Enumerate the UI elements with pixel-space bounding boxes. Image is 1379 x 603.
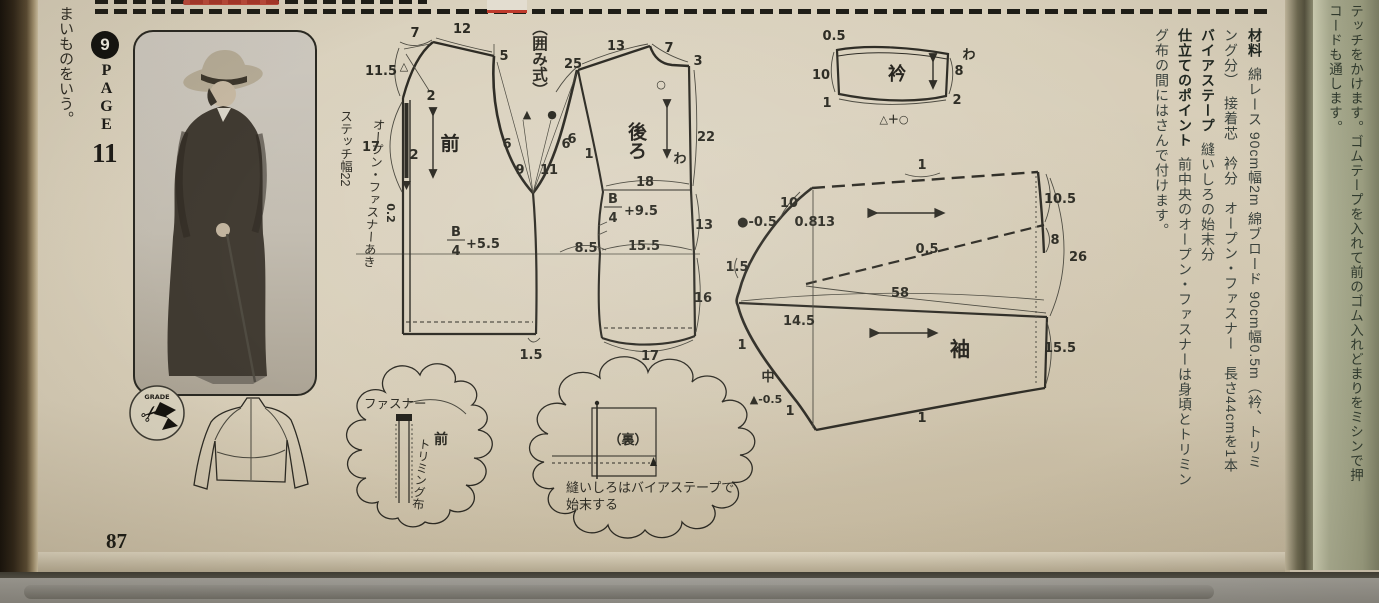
collar-dim-2: 2 bbox=[952, 93, 961, 108]
back-dim-15-5: 15.5 bbox=[628, 239, 660, 254]
front-dim-9: 9 bbox=[515, 163, 524, 178]
sewing-point-column-2: グ布の間にはさんで付けます。 bbox=[1155, 28, 1169, 566]
front-dim-12: 12 bbox=[453, 22, 471, 37]
collar-fold-mark: わ bbox=[962, 48, 975, 63]
book-page-photo: まいものをいう。 9 PAGE 11 87 bbox=[0, 0, 1379, 603]
sleeve-dim-1b: 1 bbox=[785, 404, 794, 419]
back-title: 後ろ bbox=[622, 122, 649, 172]
sleeve-dim-1-left: 1 bbox=[737, 338, 746, 353]
back-dim-6: 6 bbox=[567, 132, 576, 147]
sewing-point-heading: 仕立てのポイント bbox=[1177, 28, 1193, 148]
method-label: （囲み式） bbox=[527, 20, 549, 100]
back-dim-18: 18 bbox=[636, 175, 654, 190]
front-title: 前 bbox=[440, 132, 459, 155]
front-stitch-note: ステッチ幅22 bbox=[336, 110, 355, 230]
back-dim-22: 22 bbox=[697, 130, 715, 145]
bias-tape-heading: バイアステープ bbox=[1200, 28, 1216, 133]
front-dim-0-2: 0.2 bbox=[384, 203, 397, 223]
sleeve-labels: 1 10 ●-0.5 0.8 13 10.5 8 26 0.5 58 14.5 … bbox=[725, 158, 1087, 426]
front-dim-8-5: 8.5 bbox=[574, 241, 597, 256]
detail2-caption: 縫いしろはバイアステープで 始末する bbox=[566, 480, 736, 514]
sleeve-title: 袖 bbox=[950, 337, 970, 361]
front-formula-den: 4 bbox=[451, 244, 460, 259]
collar-marks: △＋○ bbox=[879, 113, 908, 126]
front-formula-num: B bbox=[451, 225, 461, 240]
materials-heading: 材料 bbox=[1247, 28, 1263, 58]
back-dim-17: 17 bbox=[641, 349, 659, 364]
collar-labels: 0.5 10 1 8 2 わ 衿 △＋○ bbox=[812, 29, 976, 126]
back-dim-13: 13 bbox=[607, 39, 625, 54]
collar-title: 衿 bbox=[888, 63, 906, 85]
sleeve-dim-tri-0-5: ▲-0.5 bbox=[750, 393, 783, 406]
sleeve-dim-1-top: 1 bbox=[917, 158, 926, 173]
next-page-column-2: コードも通します。 bbox=[1324, 4, 1344, 304]
back-dim-13r: 13 bbox=[695, 218, 713, 233]
grade-logo: GRADE ✂ bbox=[130, 386, 184, 440]
back-dim-7: 7 bbox=[664, 41, 673, 56]
front-mark-solid-triangle: ▲ bbox=[523, 108, 532, 121]
back-dim-1: 1 bbox=[584, 147, 593, 162]
front-dim-7: 7 bbox=[410, 26, 419, 41]
front-mark-triangle: △ bbox=[400, 60, 409, 73]
front-mark-dot: ● bbox=[547, 108, 557, 121]
sleeve-dim-15-5: 15.5 bbox=[1044, 341, 1076, 356]
back-formula-den: 4 bbox=[608, 211, 617, 226]
collar-dim-1: 1 bbox=[822, 96, 831, 111]
dimension-arcs bbox=[390, 38, 1064, 384]
back-fold-mark: わ bbox=[673, 152, 686, 167]
back-mark-circle: ○ bbox=[656, 78, 666, 91]
front-dim-2a: 2 bbox=[426, 89, 435, 104]
sleeve-dim-58: 58 bbox=[891, 286, 909, 301]
collar-dim-8: 8 bbox=[954, 64, 963, 79]
sleeve-dim-26: 26 bbox=[1069, 250, 1087, 265]
sleeve-dim-8: 8 bbox=[1050, 233, 1059, 248]
next-page-column-1: テッチをかけます。ゴムテープを入れて前のゴム入れどまりをミシンで押 bbox=[1345, 4, 1365, 564]
sleeve-dim-10-5: 10.5 bbox=[1044, 192, 1076, 207]
front-dim-11-5: 11.5 bbox=[365, 64, 397, 79]
materials-column-2: ング分） 接着芯 衿分 オープン・ファスナー 長さ44cmを1本 bbox=[1224, 28, 1238, 566]
sleeve-dim-0-8: 0.8 bbox=[794, 215, 817, 230]
sleeve-dim-dot-0-5: ●-0.5 bbox=[737, 215, 777, 230]
sleeve-dim-13: 13 bbox=[817, 215, 835, 230]
detail2-caption-line2: 始末する bbox=[566, 497, 618, 512]
back-dim-3: 3 bbox=[693, 54, 702, 69]
front-labels: 7 12 5 11.5 △ 2 17 2 0.2 6 6 9 11 ▲ ● 8.… bbox=[362, 22, 598, 363]
front-dim-2b: 2 bbox=[409, 148, 418, 163]
detail2-caption-line1: 縫いしろはバイアステープで bbox=[566, 480, 734, 495]
sleeve-dim-1-bottom: 1 bbox=[917, 411, 926, 426]
sewing-point-column: 仕立てのポイント前中央のオープン・ファスナーは身頃とトリミン bbox=[1178, 28, 1192, 566]
detail2-back-label: （裏） bbox=[608, 432, 647, 448]
materials-column-1: 材料綿レース 90cm幅2m 綿ブロード 90cm幅0.5m（衿、トリミ bbox=[1248, 28, 1262, 566]
front-dim-1-5: 1.5 bbox=[519, 348, 542, 363]
sleeve-dim-1-5: 1.5 bbox=[725, 260, 748, 275]
bias-tape-column: バイアステープ縫いしろの始末分 bbox=[1201, 28, 1215, 566]
detail1-front-label: 前 bbox=[434, 431, 448, 448]
detail1-zipper-label: ファスナー bbox=[364, 393, 427, 412]
front-dim-11: 11 bbox=[540, 163, 558, 178]
back-dim-25: 25 bbox=[564, 57, 582, 72]
front-dim-6l: 6 bbox=[502, 137, 511, 152]
back-formula-suffix: +9.5 bbox=[624, 204, 658, 219]
sleeve-dim-10: 10 bbox=[780, 196, 798, 211]
collar-dim-0-5: 0.5 bbox=[822, 29, 845, 44]
sleeve-center-mark: 中 bbox=[761, 369, 774, 385]
collar-dim-10: 10 bbox=[812, 68, 830, 83]
sleeve-dim-14-5: 14.5 bbox=[783, 314, 815, 329]
sleeve-dim-0-5: 0.5 bbox=[915, 242, 938, 257]
back-dim-16: 16 bbox=[694, 291, 712, 306]
front-piece bbox=[402, 42, 577, 334]
back-piece bbox=[578, 46, 695, 345]
jacket-back-sketch bbox=[194, 398, 308, 489]
front-formula-suffix: +5.5 bbox=[466, 237, 500, 252]
back-formula-num: B bbox=[608, 192, 618, 207]
front-dim-5: 5 bbox=[499, 49, 508, 64]
